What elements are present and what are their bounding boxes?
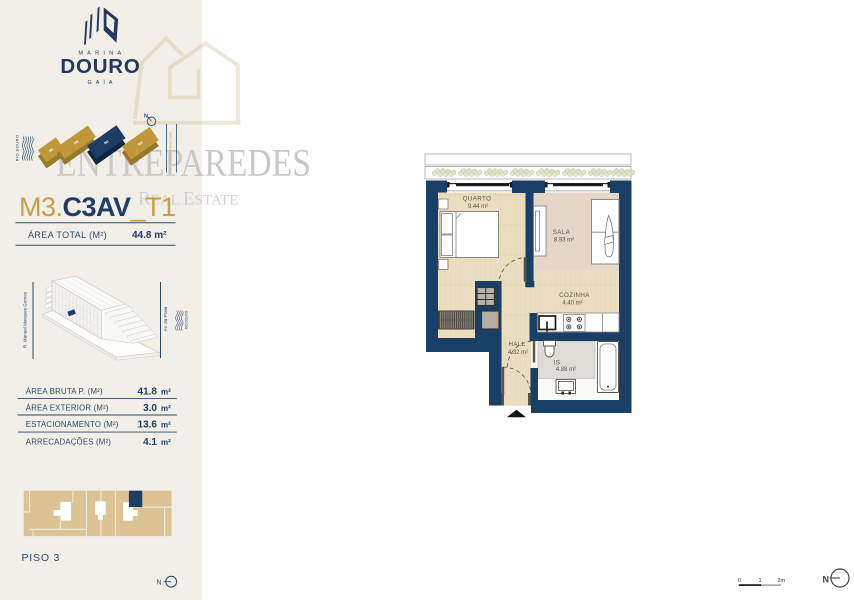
svg-text:ARRECADAÇÕES (M²): ARRECADAÇÕES (M²) — [26, 438, 111, 447]
svg-text:M3.C3AV_T1: M3.C3AV_T1 — [19, 192, 176, 222]
svg-text:4.1: 4.1 — [143, 437, 157, 448]
svg-text:IS: IS — [554, 360, 561, 367]
svg-text:ESTACIONAMENTO (M²): ESTACIONAMENTO (M²) — [26, 420, 119, 429]
svg-text:RIO DOURO: RIO DOURO — [185, 310, 189, 329]
svg-text:ÁREA TOTAL (M²): ÁREA TOTAL (M²) — [28, 230, 107, 240]
svg-text:13.6: 13.6 — [138, 420, 158, 431]
svg-text:4.32 m²: 4.32 m² — [508, 350, 528, 356]
svg-text:1: 1 — [759, 578, 762, 584]
svg-text:4.40 m²: 4.40 m² — [562, 301, 582, 307]
svg-text:3.0: 3.0 — [143, 403, 157, 414]
svg-text:m²: m² — [161, 404, 171, 413]
svg-text:2m: 2m — [778, 578, 786, 584]
svg-text:COZINHA: COZINHA — [559, 292, 590, 299]
svg-text:Av. da Praia: Av. da Praia — [163, 306, 168, 331]
svg-text:ÁREA BRUTA P. (M²): ÁREA BRUTA P. (M²) — [26, 387, 103, 396]
svg-text:HALL: HALL — [508, 341, 525, 348]
svg-text:9.44 m²: 9.44 m² — [468, 204, 488, 210]
svg-text:41.8: 41.8 — [138, 387, 158, 398]
svg-text:m²: m² — [161, 438, 171, 447]
svg-text:R. MIGUEL FERRAZ GOMES: R. MIGUEL FERRAZ GOMES — [170, 132, 173, 164]
svg-text:PISO 3: PISO 3 — [22, 552, 61, 564]
svg-text:44.8 m²: 44.8 m² — [132, 230, 167, 241]
svg-text:8.93 m²: 8.93 m² — [554, 238, 574, 244]
svg-text:0: 0 — [738, 578, 741, 584]
svg-text:ÁREA EXTERIOR (M²): ÁREA EXTERIOR (M²) — [26, 404, 109, 413]
svg-text:SALA: SALA — [553, 229, 571, 236]
svg-text:N: N — [157, 580, 162, 587]
svg-text:QUARTO: QUARTO — [463, 195, 492, 202]
svg-text:GAÌA: GAÌA — [88, 79, 117, 86]
svg-text:m²: m² — [161, 388, 171, 397]
svg-text:N: N — [823, 575, 830, 585]
svg-text:R. Manuel Marques Gomes: R. Manuel Marques Gomes — [23, 291, 28, 348]
svg-text:DOURO: DOURO — [60, 55, 140, 78]
svg-text:RIO DOURO: RIO DOURO — [15, 135, 20, 162]
svg-text:4.88 m²: 4.88 m² — [556, 367, 576, 373]
svg-text:m²: m² — [161, 421, 171, 430]
